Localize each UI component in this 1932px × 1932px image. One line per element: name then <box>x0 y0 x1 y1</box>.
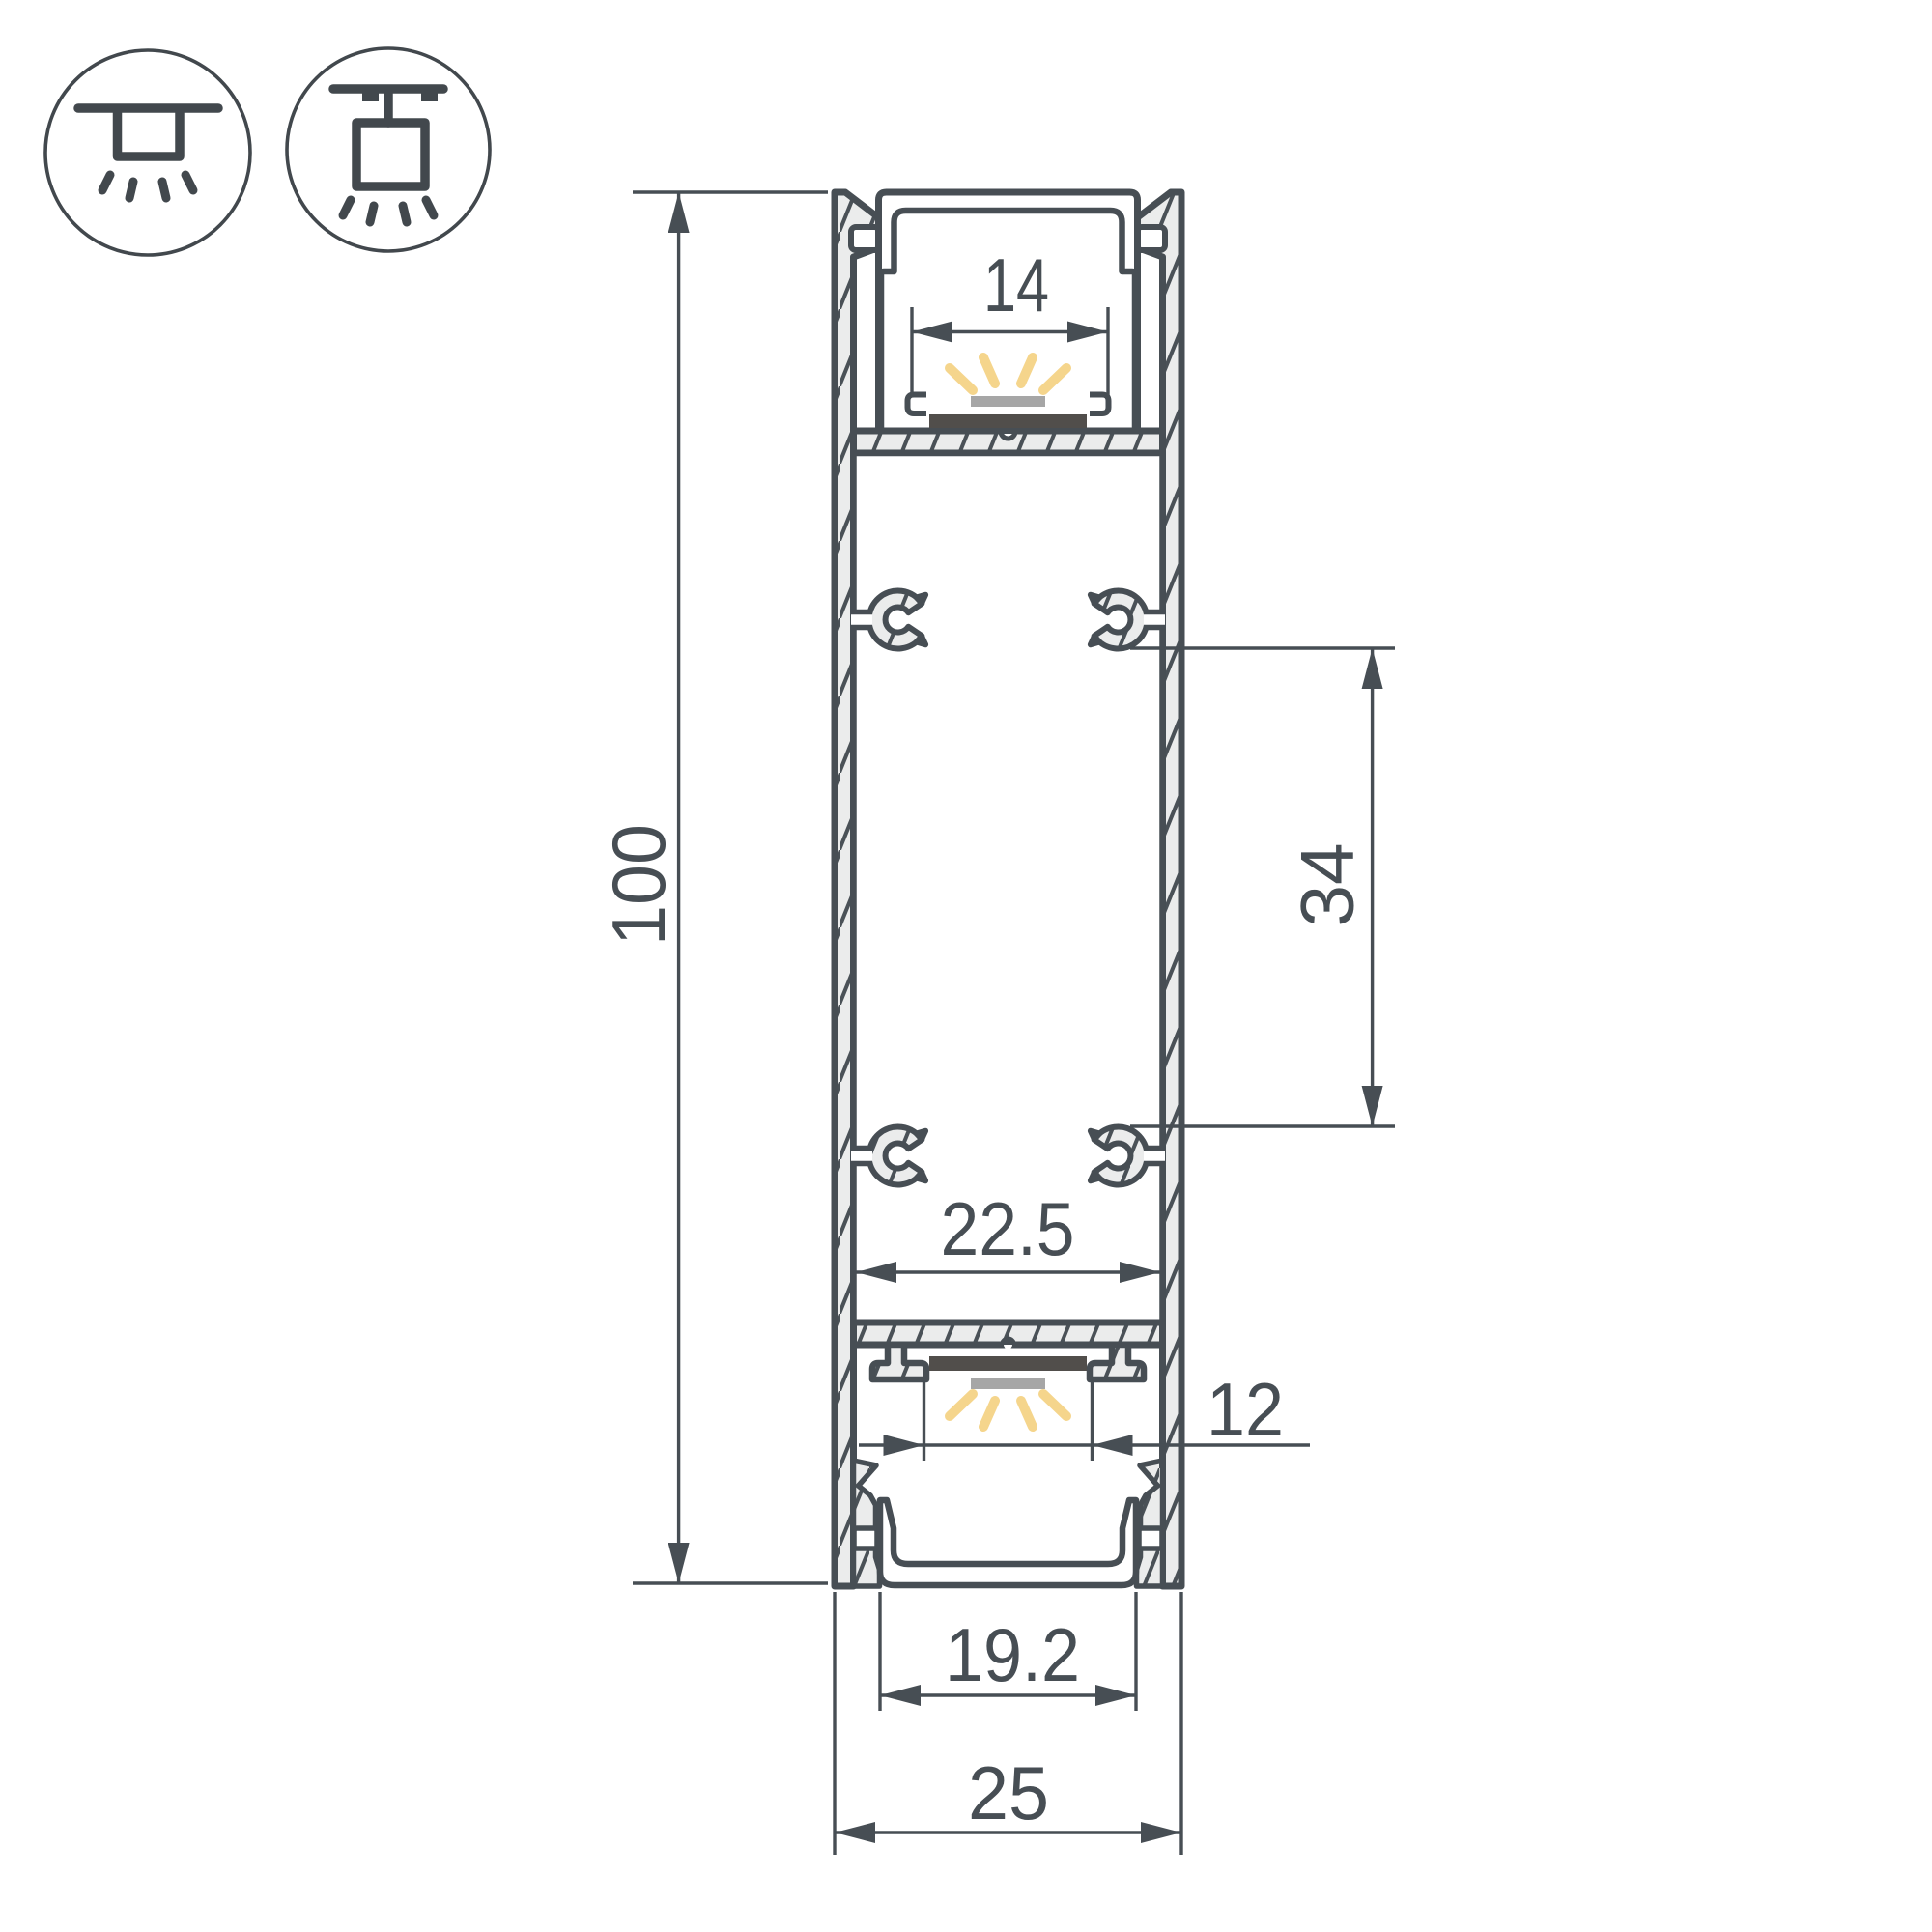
svg-text:100: 100 <box>596 824 681 946</box>
svg-text:25: 25 <box>968 1750 1049 1835</box>
svg-text:12: 12 <box>1207 1367 1284 1452</box>
svg-text:19.2: 19.2 <box>945 1612 1080 1697</box>
svg-text:14: 14 <box>983 242 1049 327</box>
svg-text:34: 34 <box>1285 843 1370 927</box>
svg-text:22.5: 22.5 <box>941 1186 1075 1271</box>
